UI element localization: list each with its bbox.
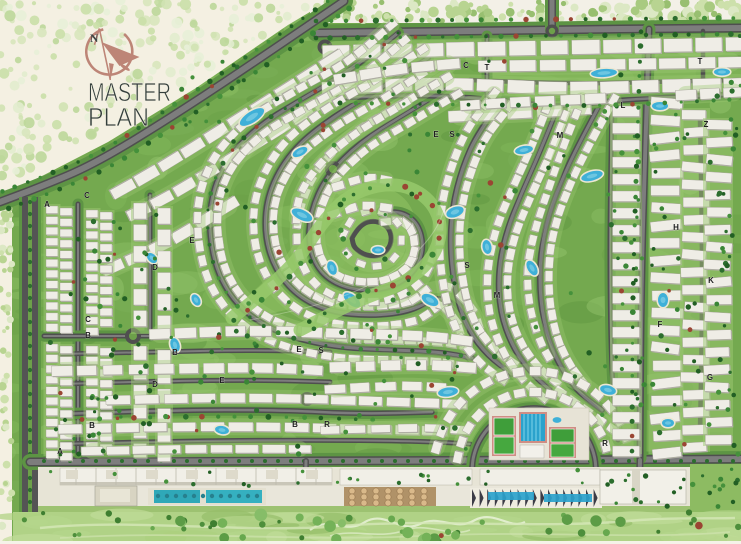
svg-text:C: C <box>84 191 90 200</box>
svg-text:B: B <box>89 421 95 430</box>
svg-text:E: E <box>433 130 439 139</box>
svg-text:T: T <box>485 63 490 72</box>
svg-text:D: D <box>152 380 158 389</box>
svg-text:H: H <box>673 223 679 232</box>
svg-text:B: B <box>292 420 298 429</box>
svg-text:G: G <box>707 373 713 382</box>
svg-text:F: F <box>658 320 663 329</box>
svg-text:R: R <box>324 420 330 429</box>
svg-text:S: S <box>449 130 455 139</box>
svg-text:Z: Z <box>704 120 709 129</box>
svg-text:T: T <box>698 57 703 66</box>
svg-text:B: B <box>85 331 91 340</box>
svg-text:C: C <box>463 61 469 70</box>
svg-text:S: S <box>464 261 470 270</box>
svg-text:D: D <box>152 263 158 272</box>
svg-text:R: R <box>602 439 608 448</box>
svg-text:K: K <box>708 276 714 285</box>
svg-text:L: L <box>621 101 626 110</box>
svg-text:B: B <box>172 348 178 357</box>
svg-text:E: E <box>296 345 302 354</box>
svg-text:C: C <box>85 315 91 324</box>
svg-text:A: A <box>44 200 50 209</box>
svg-text:E: E <box>219 376 225 385</box>
svg-text:M: M <box>557 131 564 140</box>
svg-text:S: S <box>318 346 324 355</box>
svg-text:M: M <box>494 291 501 300</box>
svg-text:A: A <box>57 447 63 456</box>
svg-text:N: N <box>90 33 99 45</box>
svg-text:PLAN: PLAN <box>88 102 149 132</box>
svg-text:E: E <box>189 236 195 245</box>
